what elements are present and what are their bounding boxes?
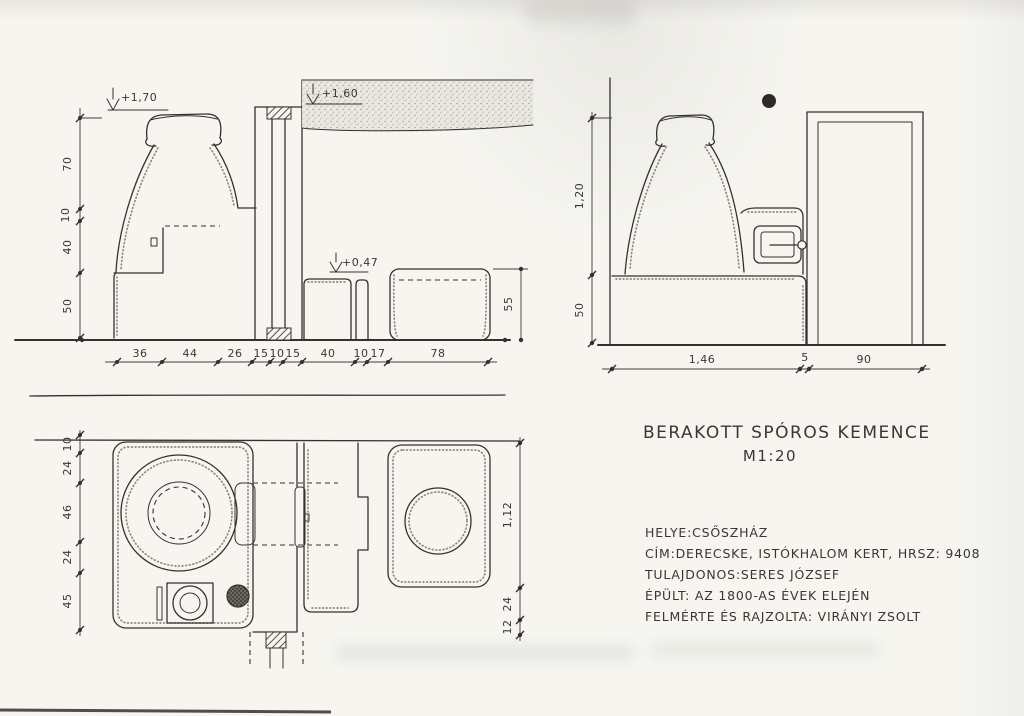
post-hatch-bottom — [267, 328, 291, 340]
info-line-address: CÍM:DERECSKE, ISTÓKHALOM KERT, HRSZ: 940… — [645, 546, 980, 561]
dim-label: 50 — [61, 299, 74, 314]
oven-dome — [114, 114, 256, 338]
firebox-door — [754, 226, 806, 263]
dim-label: 45 — [61, 594, 74, 609]
info-block: HELYE:CSŐSZHÁZ CÍM:DERECSKE, ISTÓKHALOM … — [644, 525, 980, 624]
plan-dim-chain-right: 1,12 24 12 — [501, 437, 524, 641]
plan-view: 10 24 46 24 45 1,12 24 12 — [35, 430, 524, 668]
dome-outline-plan — [121, 455, 237, 571]
oven-dome-side — [625, 115, 744, 274]
section-line — [30, 395, 505, 396]
dim-label: 24 — [501, 597, 514, 612]
dark-hole-plan — [227, 585, 249, 607]
post-hatch-top — [267, 107, 291, 119]
flue-connector-plan — [235, 483, 255, 545]
dim-label: 10 — [354, 347, 369, 360]
dim-label: 26 — [228, 347, 243, 360]
dim-label: 15 — [254, 347, 269, 360]
front-dim-chain-left: 70 10 40 50 — [59, 108, 102, 342]
post-plan — [250, 632, 303, 668]
dim-label: 40 — [321, 347, 336, 360]
oven-base-plinth — [612, 276, 806, 344]
dim-label: 1,12 — [501, 502, 514, 529]
front-dim-chain-bottom: 36 44 26 15 10 15 40 10 17 78 — [105, 347, 497, 366]
dim-label: 15 — [286, 347, 301, 360]
info-line-surveyor: FELMÉRTE ÉS RAJZOLTA: VIRÁNYI ZSOLT — [645, 609, 921, 624]
bench-and-table — [304, 269, 490, 340]
level-mark-047: +0,47 — [330, 253, 378, 272]
dim-label: 1,20 — [573, 183, 586, 210]
dim-label: 24 — [61, 461, 74, 476]
table-plan — [388, 445, 490, 587]
dim-label: 12 — [501, 620, 514, 635]
dim-label: 10 — [270, 347, 285, 360]
dim-label: 5 — [801, 351, 809, 364]
dim-label: 44 — [183, 347, 198, 360]
dim-label: 10 — [61, 437, 74, 452]
level-value: +1,70 — [121, 91, 157, 104]
side-dim-chain-bottom: 1,46 5 90 — [602, 351, 930, 373]
dim-label: 78 — [431, 347, 446, 360]
dim-label: 1,46 — [689, 353, 716, 366]
stove-ring-plan — [157, 583, 213, 623]
level-mark-170: +1,70 — [107, 88, 168, 110]
side-dim-chain-left: 1,20 50 — [573, 112, 612, 347]
drawing-title: BERAKOTT SPÓROS KEMENCE — [643, 421, 931, 443]
plan-dim-chain-left: 10 24 46 24 45 — [61, 430, 84, 636]
wall-face-line — [35, 440, 520, 441]
dim-label: 17 — [371, 347, 386, 360]
door-frame — [807, 112, 923, 345]
firebox — [741, 208, 806, 274]
title-block: BERAKOTT SPÓROS KEMENCE M1:20 — [643, 421, 931, 465]
dim-label: 70 — [61, 157, 74, 172]
drawing-canvas: +1,70 +1,60 +0,47 70 10 40 50 — [0, 0, 1024, 716]
vent-hole-dot — [762, 94, 776, 108]
info-line-location: HELYE:CSŐSZHÁZ — [645, 525, 768, 540]
dim-label: 90 — [857, 353, 872, 366]
info-line-owner: TULAJDONOS:SERES JÓZSEF — [644, 567, 840, 582]
level-value: +0,47 — [342, 256, 378, 269]
door-handle-knob — [798, 241, 806, 249]
drawing-scale: M1:20 — [743, 447, 797, 465]
oven-platform-plan — [113, 442, 255, 628]
dim-label: 24 — [61, 550, 74, 565]
dim-label: 40 — [61, 240, 74, 255]
side-elevation: 1,20 50 1,46 5 90 — [573, 78, 945, 373]
level-value: +1,60 — [322, 87, 358, 100]
porch-bench-plan — [304, 443, 368, 612]
front-dim-55: 55 — [493, 267, 528, 342]
front-elevation: +1,70 +1,60 +0,47 70 10 40 50 — [15, 80, 533, 366]
scanned-drawing-sheet: +1,70 +1,60 +0,47 70 10 40 50 — [0, 0, 1024, 716]
scan-edge-line — [0, 710, 331, 712]
dim-label: 46 — [61, 505, 74, 520]
dim-label: 36 — [133, 347, 148, 360]
info-line-built: ÉPÜLT: AZ 1800-AS ÉVEK ELEJÉN — [645, 587, 870, 603]
dim-label: 10 — [59, 208, 72, 223]
wall-and-door-plan — [253, 443, 338, 632]
dim-label: 55 — [502, 297, 515, 312]
dim-label: 50 — [573, 303, 586, 318]
